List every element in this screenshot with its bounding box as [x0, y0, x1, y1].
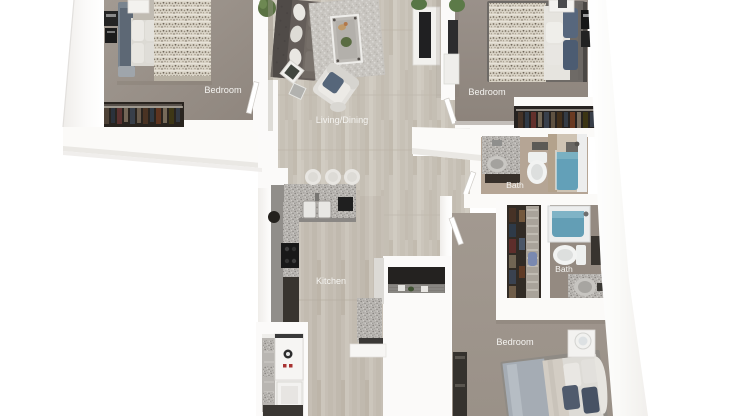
svg-text:Bedroom: Bedroom: [204, 85, 242, 95]
svg-text:Bedroom: Bedroom: [468, 87, 506, 97]
svg-text:Bath: Bath: [506, 180, 524, 190]
svg-text:Living/Dining: Living/Dining: [316, 115, 369, 125]
svg-text:Kitchen: Kitchen: [316, 276, 346, 286]
svg-text:Bath: Bath: [555, 264, 573, 274]
svg-text:Bedroom: Bedroom: [496, 337, 534, 347]
